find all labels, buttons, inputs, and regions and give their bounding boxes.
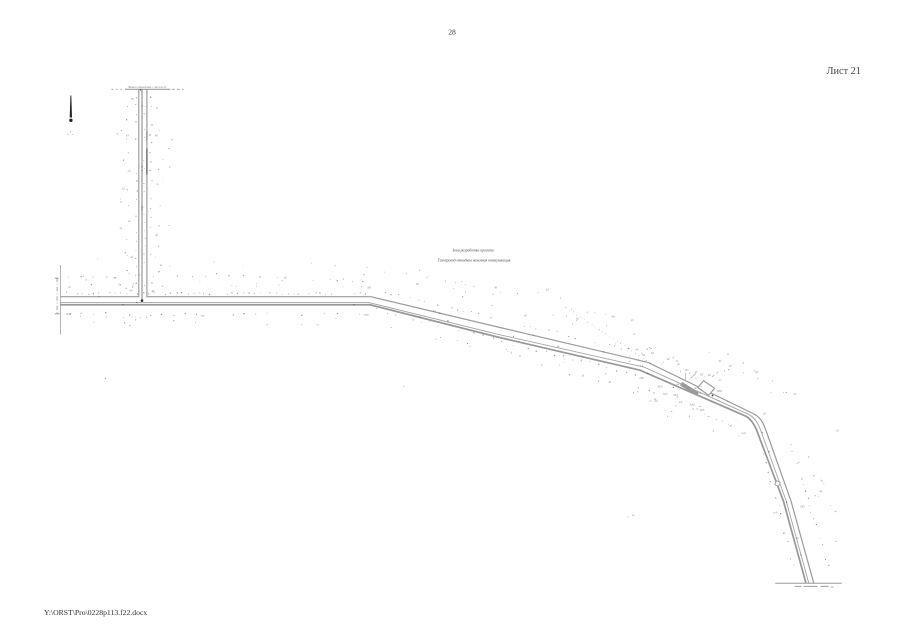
svg-text:ПЗ: ПЗ (685, 368, 689, 372)
svg-text:аб: аб (128, 169, 131, 173)
svg-text:Линия совмещения с листом 22: Линия совмещения с листом 22 (128, 85, 167, 89)
svg-text:а: а (564, 359, 565, 361)
svg-text:КГ: КГ (700, 373, 704, 377)
svg-text:ЬГ: ЬГ (546, 288, 550, 292)
svg-text:чч: чч (719, 378, 723, 382)
svg-text:МЛ: МЛ (658, 384, 663, 388)
svg-text:62: 62 (651, 351, 655, 355)
svg-text:соб: соб (773, 511, 778, 515)
svg-text:ам: ам (676, 383, 679, 386)
svg-text:10: 10 (68, 285, 72, 289)
svg-text:2Ю: 2Ю (800, 505, 805, 509)
svg-text:48: 48 (708, 373, 712, 377)
svg-text:63: 63 (126, 134, 130, 138)
svg-text:сааг: сааг (741, 431, 747, 435)
svg-text:Лист 21: Лист 21 (827, 66, 861, 77)
svg-text:дб: дб (155, 233, 159, 237)
svg-text:ААС: ААС (690, 402, 696, 406)
svg-text:аб: аб (763, 412, 766, 416)
svg-text:бм: бм (612, 315, 615, 319)
svg-text:ам: ам (113, 277, 116, 280)
svg-text:м: м (813, 474, 815, 477)
svg-text:аб: аб (130, 255, 133, 259)
svg-text:44: 44 (130, 288, 134, 292)
svg-text:ам: ам (729, 365, 732, 368)
svg-text:аб: аб (836, 429, 839, 433)
svg-text:Зона разработки проекта: Зона разработки проекта (452, 249, 493, 253)
svg-text:м: м (157, 182, 159, 186)
svg-text:ам: ам (201, 314, 204, 318)
svg-text:БЛГ: БЛГ (67, 312, 73, 316)
svg-text:ам: ам (796, 536, 799, 540)
svg-text:Y:\ORST\Pro\0228p113.f22.docx: Y:\ORST\Pro\0228p113.f22.docx (44, 608, 147, 617)
svg-text:аб: аб (524, 314, 527, 318)
svg-text:20: 20 (830, 585, 834, 589)
svg-text:Газопровод-отводная наземная к: Газопровод-отводная наземная коммуникаци… (437, 259, 511, 263)
svg-text:ац/р: ац/р (364, 313, 370, 317)
svg-text:ае: ае (105, 317, 107, 319)
svg-text:28: 28 (448, 28, 456, 37)
svg-text:ПШ: ПШ (717, 389, 722, 393)
svg-text:м: м (647, 348, 649, 351)
svg-text:аЬГ: аЬГ (700, 408, 705, 412)
svg-text:2Ю: 2Ю (639, 376, 644, 380)
svg-text:чР: чР (667, 357, 671, 361)
svg-text:62: 62 (633, 334, 635, 336)
svg-text:ЬЧ: ЬЧ (368, 286, 371, 290)
svg-text:баб: баб (663, 392, 668, 396)
svg-text:49: 49 (155, 134, 159, 138)
svg-text:70: 70 (152, 289, 156, 293)
